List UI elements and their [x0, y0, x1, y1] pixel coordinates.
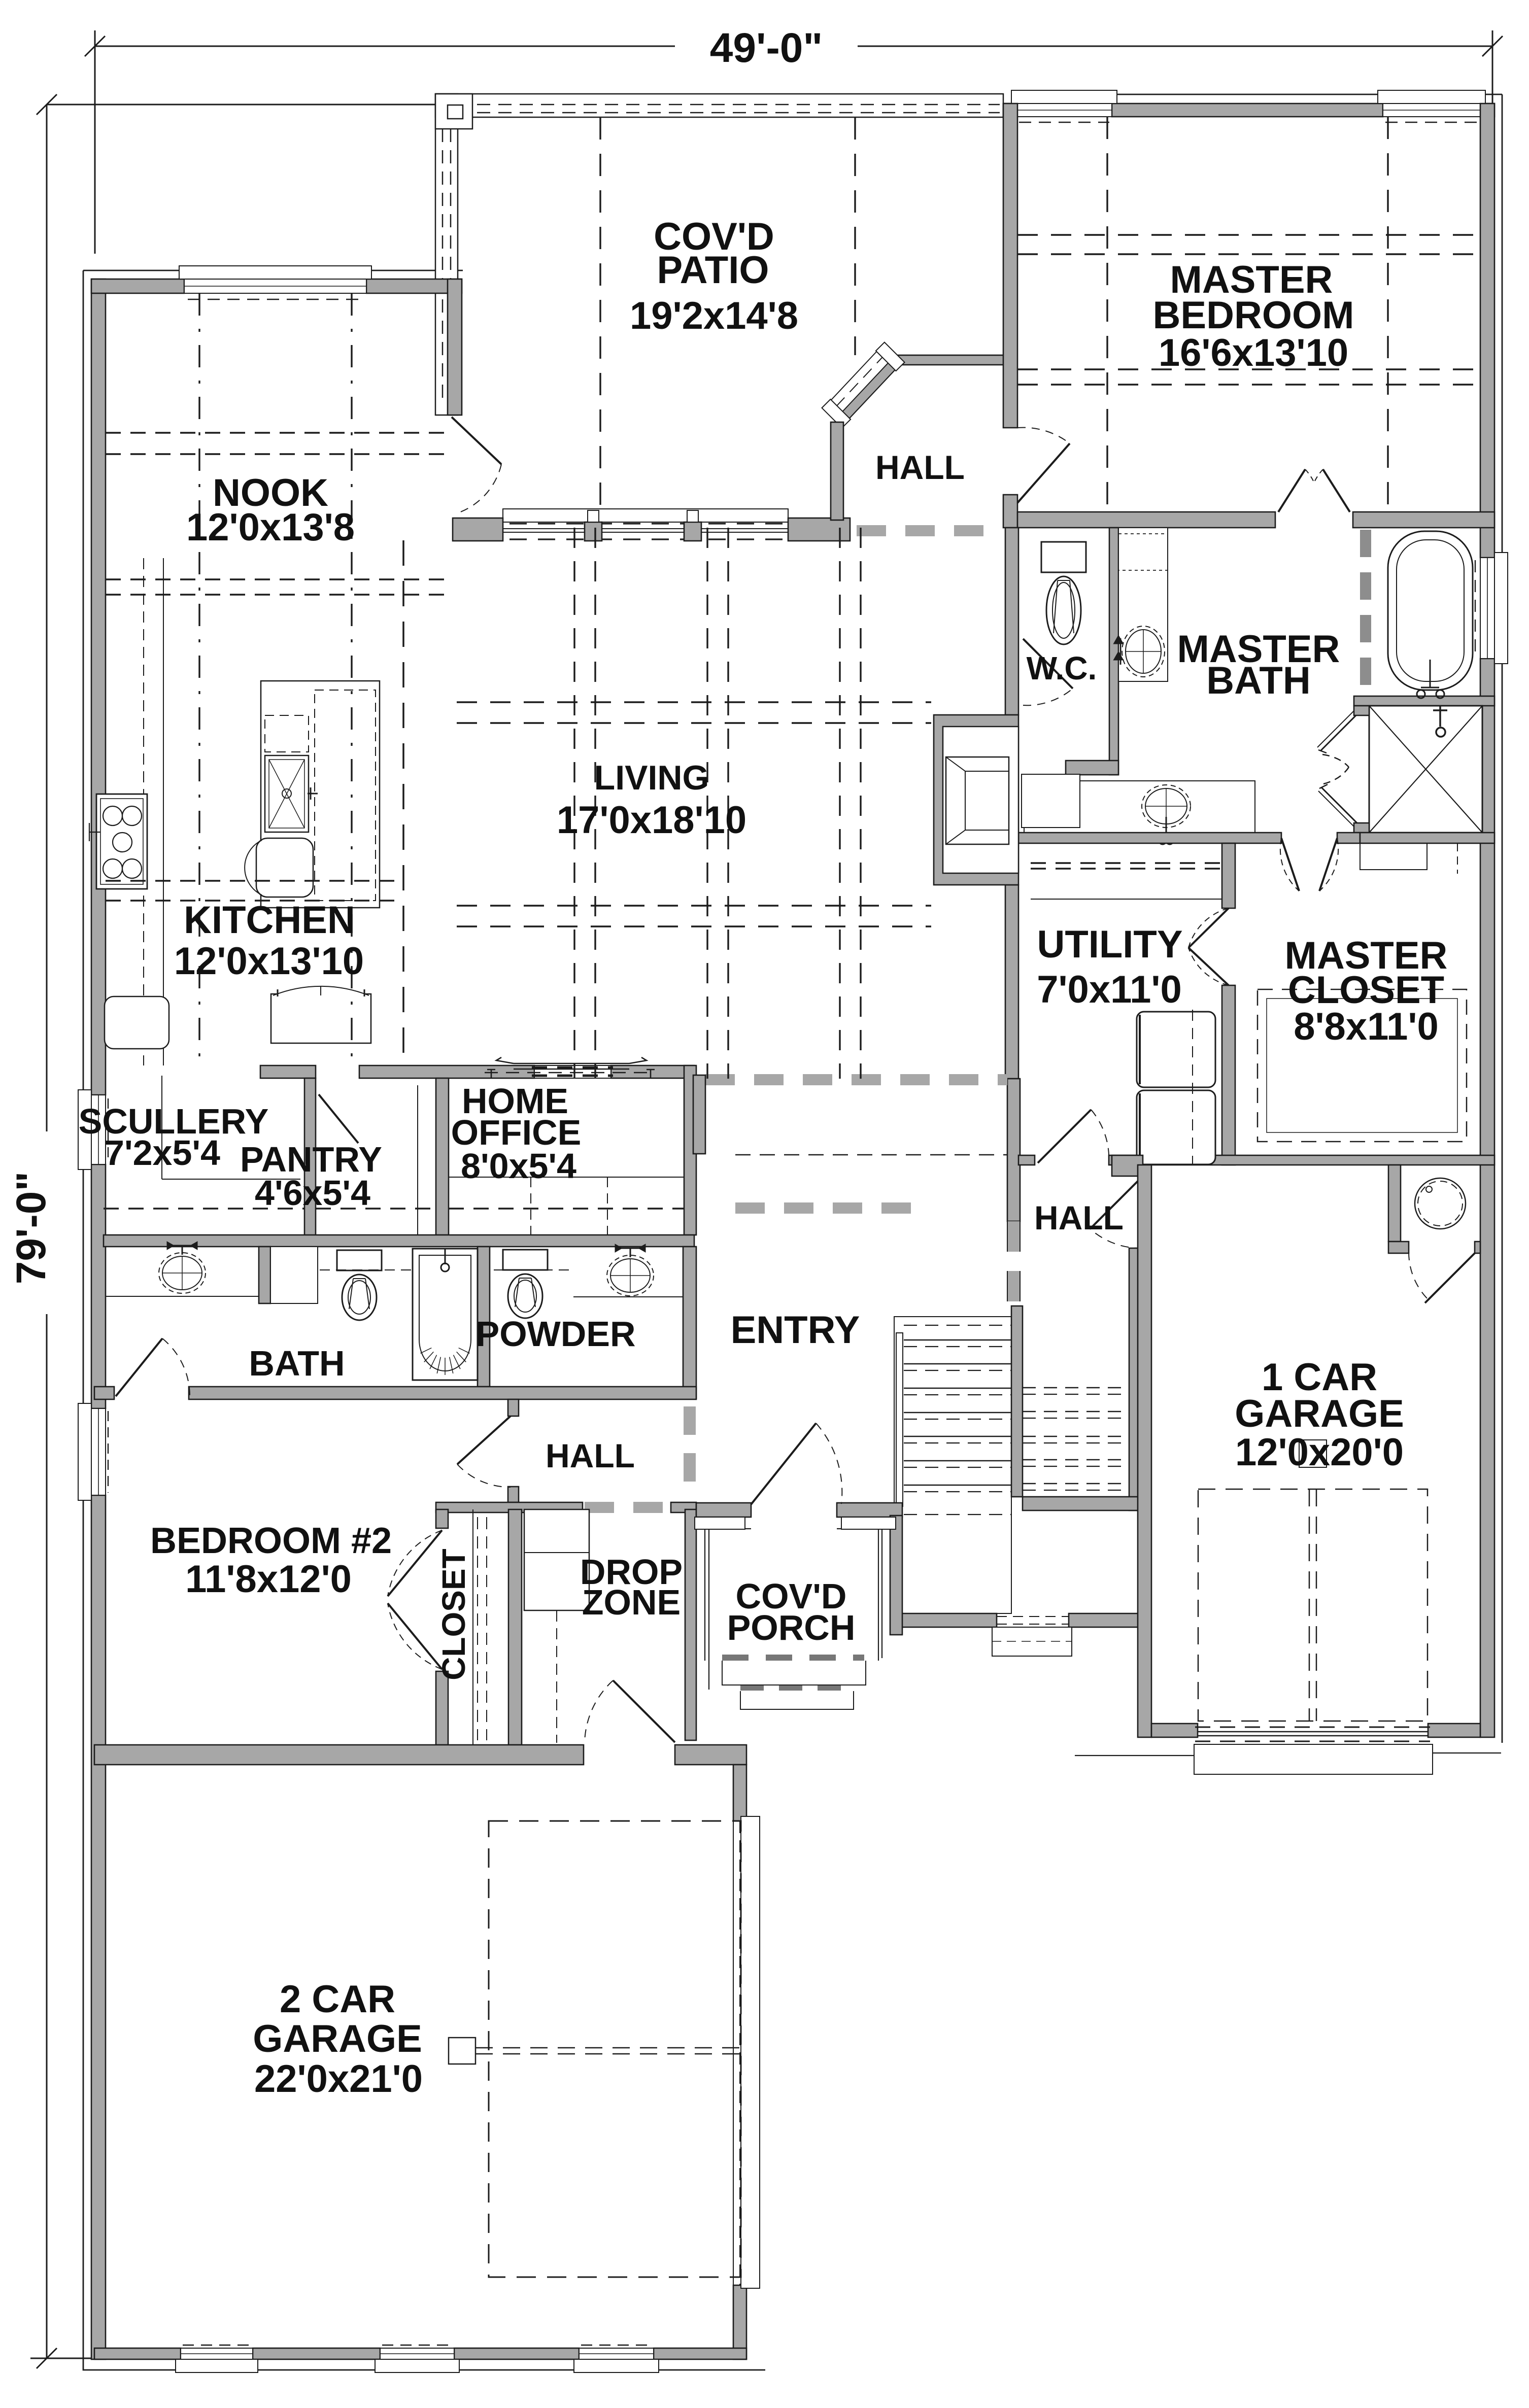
svg-text:CLOSET: CLOSET — [435, 1549, 472, 1680]
svg-text:2 CAR: 2 CAR — [280, 1978, 395, 2021]
svg-text:22'0x21'0: 22'0x21'0 — [254, 2057, 423, 2101]
svg-text:8'8x11'0: 8'8x11'0 — [1294, 1005, 1439, 1048]
svg-text:POWDER: POWDER — [476, 1314, 636, 1354]
svg-text:UTILITY: UTILITY — [1037, 923, 1182, 966]
svg-text:ZONE: ZONE — [582, 1583, 681, 1622]
svg-text:7'2x5'4: 7'2x5'4 — [105, 1133, 220, 1173]
svg-text:W.C.: W.C. — [1027, 650, 1097, 686]
svg-text:16'6x13'10: 16'6x13'10 — [1159, 331, 1348, 374]
svg-text:4'6x5'4: 4'6x5'4 — [255, 1173, 370, 1213]
svg-text:KITCHEN: KITCHEN — [184, 899, 355, 942]
svg-text:LIVING: LIVING — [594, 759, 709, 797]
svg-text:BEDROOM #2: BEDROOM #2 — [150, 1521, 392, 1561]
svg-text:HALL: HALL — [546, 1437, 635, 1474]
svg-text:12'0x20'0: 12'0x20'0 — [1235, 1431, 1404, 1474]
svg-text:BEDROOM: BEDROOM — [1153, 294, 1354, 337]
svg-text:GARAGE: GARAGE — [1235, 1392, 1404, 1435]
svg-text:11'8x12'0: 11'8x12'0 — [185, 1558, 352, 1601]
svg-text:BATH: BATH — [1206, 659, 1310, 702]
svg-text:8'0x5'4: 8'0x5'4 — [461, 1146, 576, 1186]
svg-text:BATH: BATH — [249, 1344, 345, 1383]
svg-text:HALL: HALL — [875, 449, 965, 486]
svg-text:12'0x13'8: 12'0x13'8 — [186, 506, 355, 549]
svg-text:ENTRY: ENTRY — [731, 1309, 860, 1352]
svg-text:PORCH: PORCH — [727, 1608, 856, 1647]
svg-text:PATIO: PATIO — [657, 249, 769, 292]
svg-text:19'2x14'8: 19'2x14'8 — [630, 294, 798, 337]
svg-text:12'0x13'10: 12'0x13'10 — [174, 940, 364, 983]
svg-text:49'-0": 49'-0" — [710, 25, 823, 71]
svg-text:17'0x18'10: 17'0x18'10 — [557, 799, 746, 842]
svg-text:HALL: HALL — [1034, 1199, 1124, 1236]
svg-text:GARAGE: GARAGE — [253, 2017, 422, 2060]
svg-text:79'-0": 79'-0" — [8, 1172, 54, 1285]
svg-text:7'0x11'0: 7'0x11'0 — [1037, 968, 1182, 1011]
